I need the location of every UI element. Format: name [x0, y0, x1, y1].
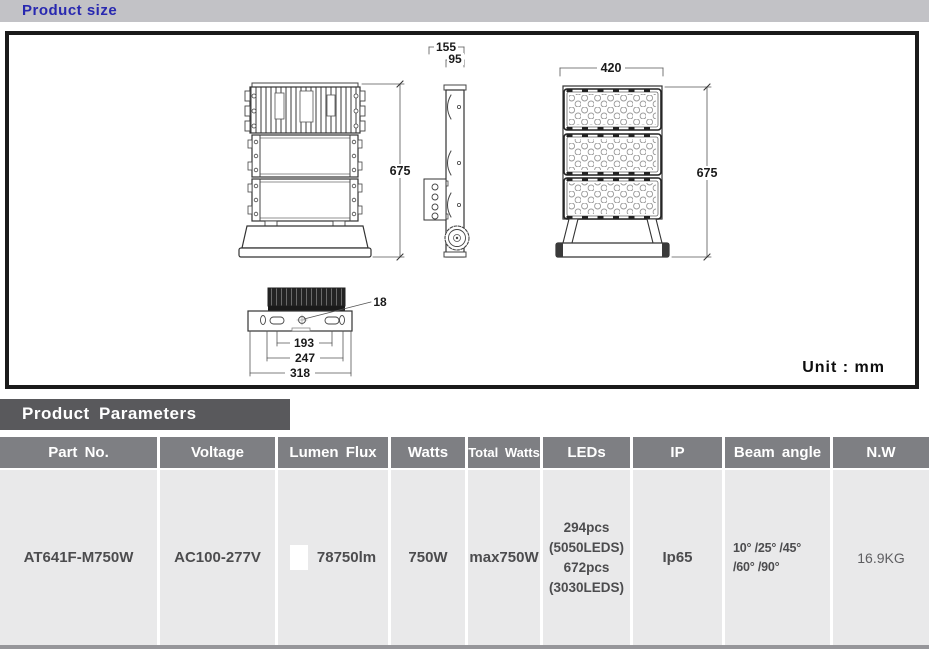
beam-angle-line: /60° /90° — [733, 558, 779, 577]
dim-mount-span-inner: 193 — [294, 336, 314, 350]
dim-mount-span-outer: 318 — [290, 366, 310, 380]
cell-part-no: AT641F-M750W — [0, 470, 157, 645]
col-header-leds: LEDs — [543, 437, 630, 468]
params-section-bar: Product Parameters — [0, 399, 290, 430]
dim-mount-hole: 18 — [373, 295, 387, 309]
unit-label: Unit : mm — [802, 359, 885, 377]
col-header-watts: Watts — [391, 437, 465, 468]
front-view-drawing: 420 — [556, 61, 722, 260]
dim-mount-span-mid: 247 — [295, 351, 315, 365]
leds-line: 672pcs — [564, 558, 610, 578]
col-header-nw: N.W — [833, 437, 929, 468]
dim-front-width: 420 — [601, 61, 622, 75]
page-header-bar: Product size — [0, 0, 929, 22]
leds-line: (5050LEDS) — [549, 538, 624, 558]
product-size-panel: 675 155 95 — [5, 31, 919, 389]
col-header-part-no: Part No. — [0, 437, 157, 468]
cell-ip: Ip65 — [633, 470, 722, 645]
cell-voltage: AC100-277V — [160, 470, 275, 645]
beam-angle-line: 10° /25° /45° — [733, 539, 801, 558]
leds-line: 294pcs — [564, 518, 610, 538]
cell-total-watts: max750W — [468, 470, 540, 645]
lumen-swatch — [290, 545, 308, 570]
cell-watts: 750W — [391, 470, 465, 645]
col-header-lumen-flux: Lumen Flux — [278, 437, 388, 468]
dim-back-height: 675 — [390, 164, 411, 178]
table-bottom-strip — [0, 645, 929, 649]
side-view-drawing: 155 95 — [424, 40, 469, 257]
lumen-flux-value: 78750lm — [317, 549, 376, 566]
cell-lumen-flux: 78750lm — [278, 470, 388, 645]
col-header-ip: IP — [633, 437, 722, 468]
col-header-voltage: Voltage — [160, 437, 275, 468]
back-view-drawing: 675 — [239, 81, 415, 260]
params-table-header: Part No. Voltage Lumen Flux Watts Total … — [0, 437, 929, 468]
cell-leds: 294pcs (5050LEDS) 672pcs (3030LEDS) — [543, 470, 630, 645]
page-title: Product size — [22, 2, 117, 19]
col-header-beam-angle: Beam angle — [725, 437, 830, 468]
product-drawing: 675 155 95 — [9, 35, 915, 385]
dim-front-height: 675 — [697, 166, 718, 180]
bottom-view-drawing: 18 193 247 318 — [248, 288, 387, 380]
leds-line: (3030LEDS) — [549, 578, 624, 598]
cell-beam-angle: 10° /25° /45° /60° /90° — [725, 470, 830, 645]
cell-nw: 16.9KG — [833, 470, 929, 645]
dim-side-depth-body: 95 — [448, 52, 462, 66]
params-table-row: AT641F-M750W AC100-277V 78750lm 750W max… — [0, 470, 929, 645]
col-header-total-watts: Total Watts — [468, 437, 540, 468]
params-section-title: Product Parameters — [22, 404, 197, 424]
